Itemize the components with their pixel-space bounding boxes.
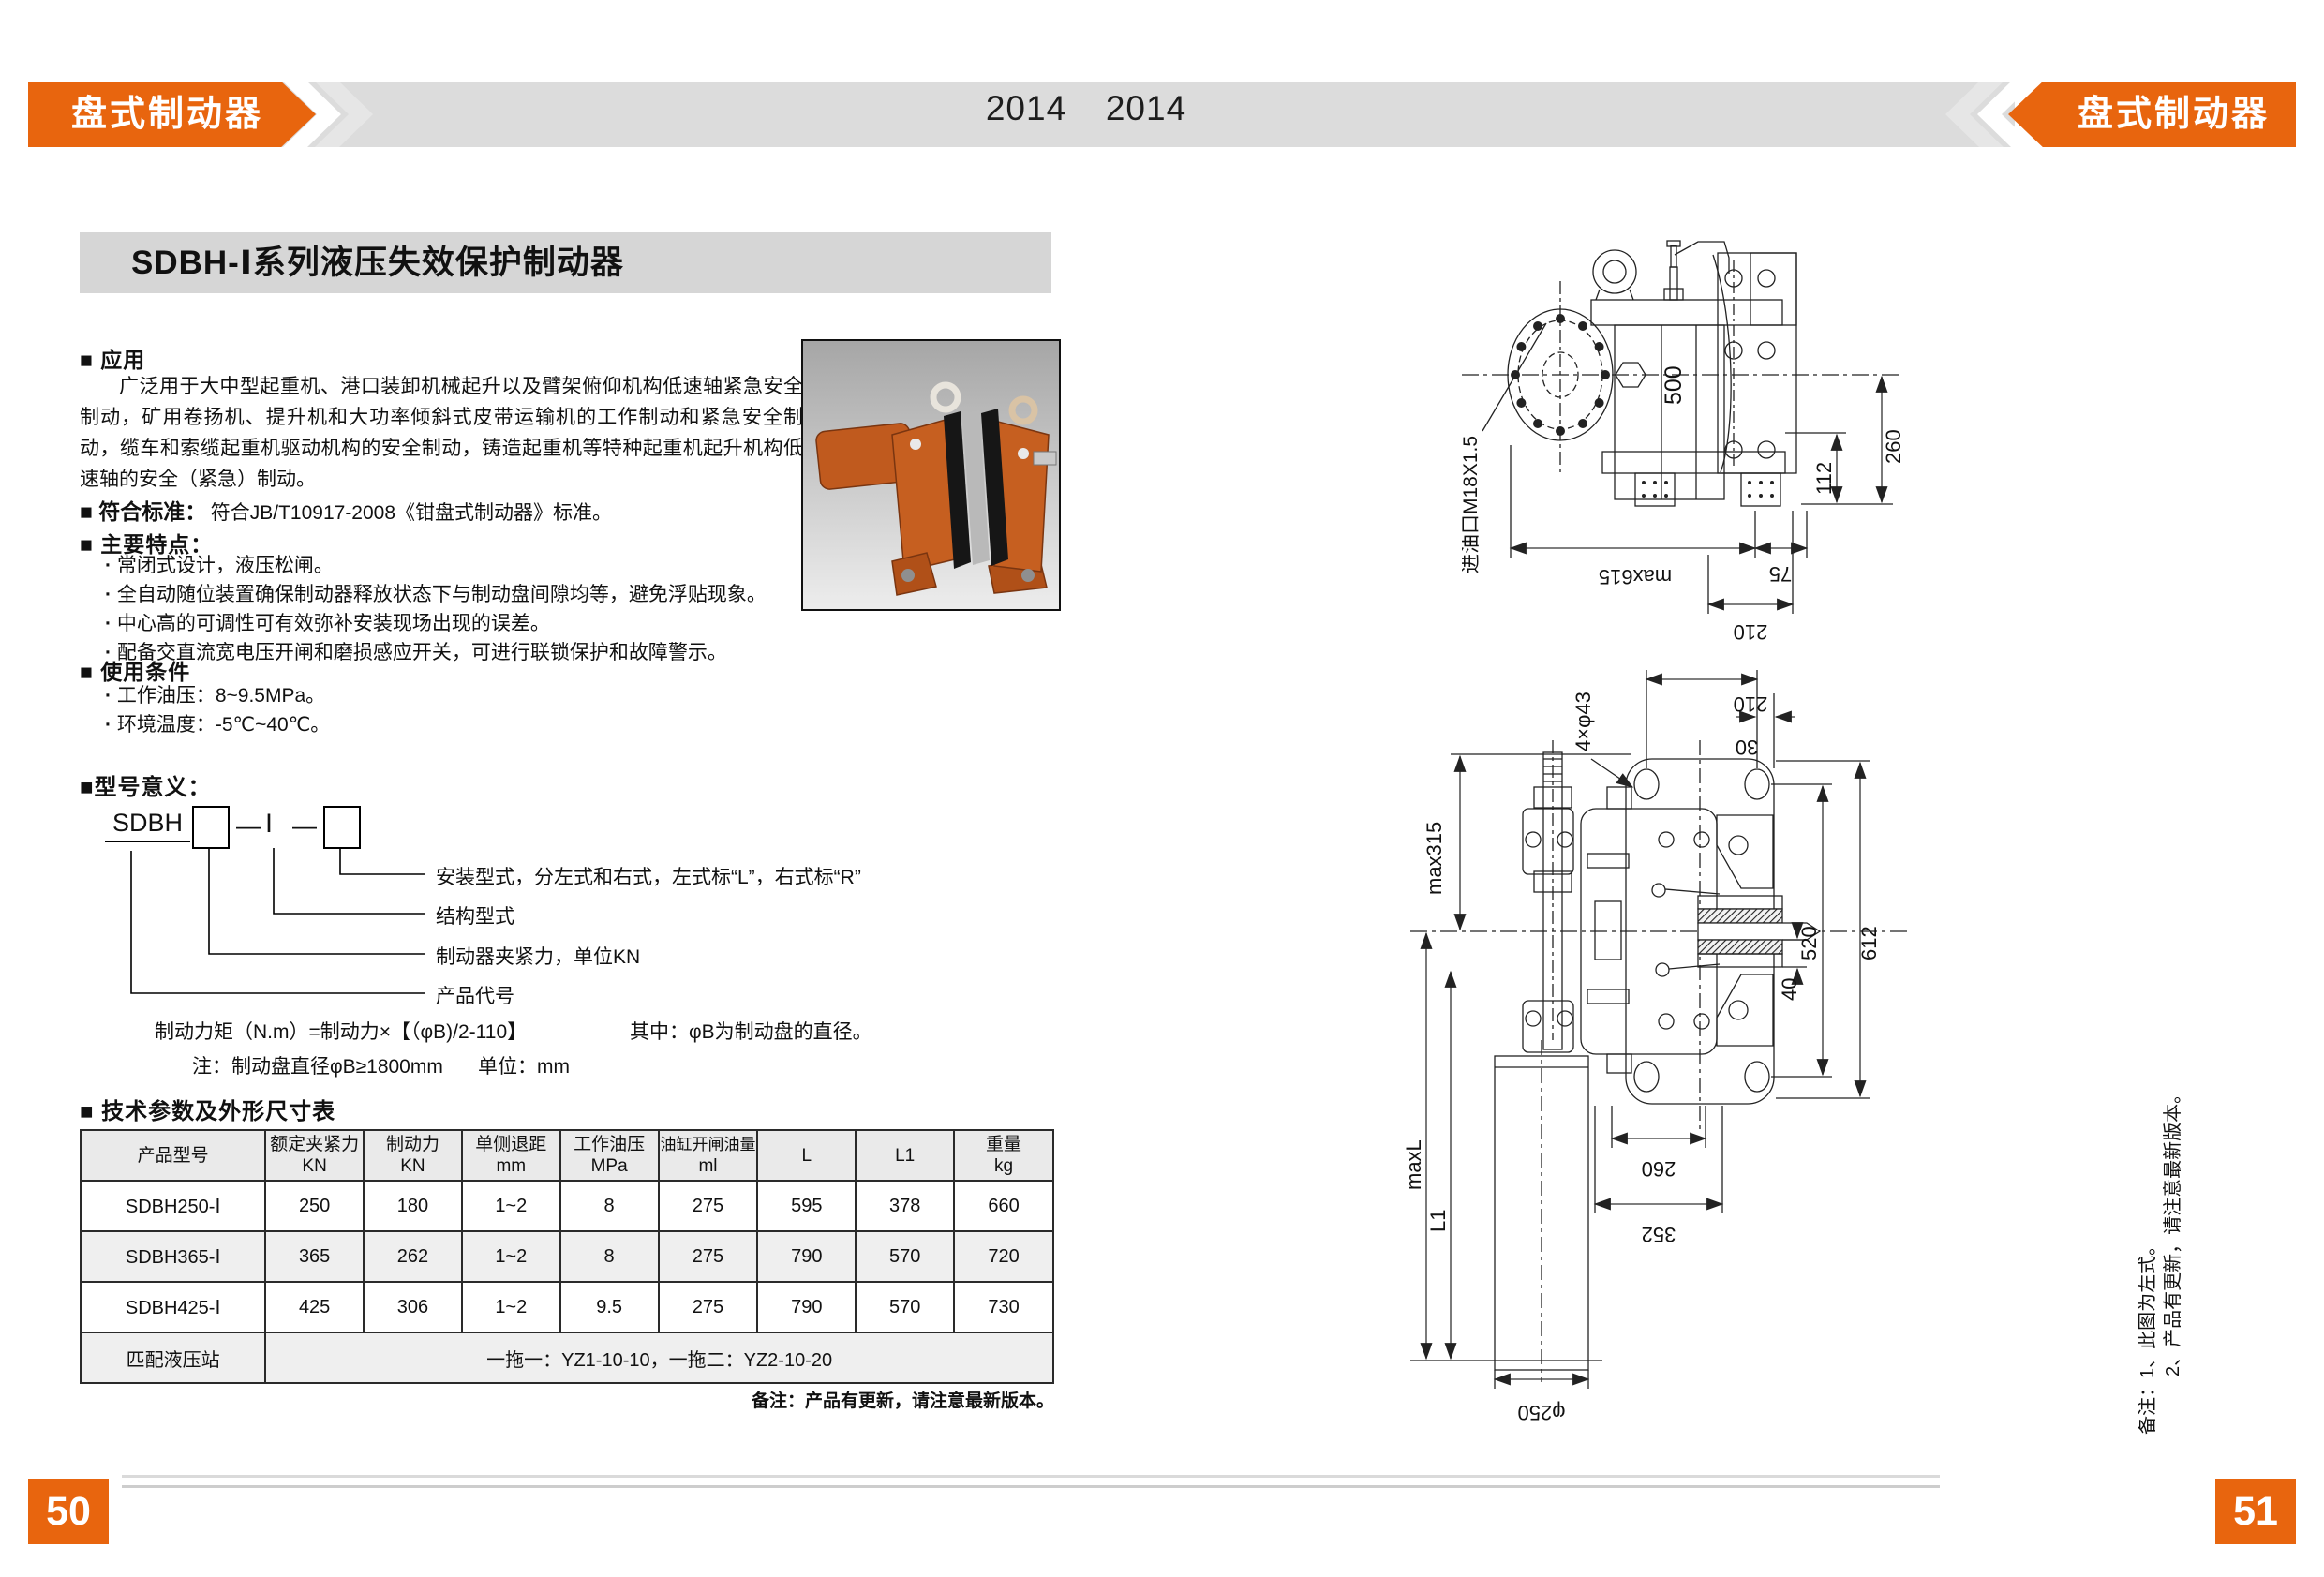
section-title-bar: SDBH-Ⅰ系列液压失效保护制动器 <box>80 232 1051 293</box>
product-photo <box>801 339 1061 611</box>
section-title: SDBH-Ⅰ系列液压失效保护制动器 <box>131 245 624 281</box>
drawing-remark-line: 2、产品有更新，请注意最新版本。 <box>2161 1041 2186 1435</box>
dim-30: 30 <box>1736 736 1758 759</box>
cell: 595 <box>757 1181 856 1231</box>
station-value: 一拖一：YZ1-10-10，一拖二：YZ2-10-20 <box>265 1332 1053 1383</box>
condition-item: 环境温度：-5℃~40℃。 <box>105 710 330 739</box>
cell: 1~2 <box>462 1282 560 1332</box>
dim-210: 210 <box>1734 692 1768 716</box>
model-box-mount <box>323 806 361 849</box>
cell: 275 <box>659 1181 758 1231</box>
year-left: 2014 <box>965 89 1087 128</box>
catalog-spread: 盘式制动器 盘式制动器 2014 2014 SDBH-Ⅰ系列液压失效保护制动器 … <box>0 0 2324 1577</box>
col-pressure: 工作油压MPa <box>560 1130 659 1181</box>
model-prefix: SDBH <box>105 809 190 842</box>
cell: 425 <box>265 1282 364 1332</box>
model-series: Ⅰ <box>265 810 273 839</box>
cell: 180 <box>364 1181 462 1231</box>
torque-formula-where: 其中：φB为制动盘的直径。 <box>630 1017 872 1045</box>
cell: 1~2 <box>462 1231 560 1282</box>
page-number-right: 51 <box>2215 1479 2296 1544</box>
dim-260: 260 <box>1642 1157 1676 1181</box>
cell: 730 <box>954 1282 1053 1332</box>
features-list: 常闭式设计，液压松闸。 全自动随位装置确保制动器释放状态下与制动盘间隙均等，避免… <box>105 551 767 667</box>
feature-item: 全自动随位装置确保制动器释放状态下与制动盘间隙均等，避免浮贴现象。 <box>105 580 767 609</box>
feature-item: 配备交直流宽电压开闸和磨损感应开关，可进行联锁保护和故障警示。 <box>105 638 767 667</box>
dim-260: 260 <box>1882 429 1905 464</box>
condition-item: 工作油压：8~9.5MPa。 <box>105 681 330 710</box>
dim-maxL: maxL <box>1402 1139 1425 1190</box>
dim-520: 520 <box>1797 926 1821 960</box>
torque-formula: 制动力矩（N.m）=制动力×【（φB)/2-110】 <box>155 1017 527 1045</box>
cell: 570 <box>856 1282 954 1332</box>
cell: 250 <box>265 1181 364 1231</box>
col-clamp: 额定夹紧力KN <box>265 1130 364 1181</box>
cell: 275 <box>659 1282 758 1332</box>
drawing-remarks: 备注：1、此图为左式。 2、产品有更新，请注意最新版本。 <box>2136 1041 2188 1435</box>
table-row: SDBH425-Ⅰ4253061~29.5275790570730 <box>81 1282 1053 1332</box>
cell: 9.5 <box>560 1282 659 1332</box>
standard-body: 符合JB/T10917-2008《钳盘式制动器》标准。 <box>211 502 612 524</box>
drawing-remark-line: 备注：1、此图为左式。 <box>2136 1041 2161 1435</box>
cell: 262 <box>364 1231 462 1282</box>
unit-note: 单位：mm <box>478 1051 570 1079</box>
standard-line: ■ 符合标准： 符合JB/T10917-2008《钳盘式制动器》标准。 <box>80 494 612 526</box>
cell: 275 <box>659 1231 758 1282</box>
model-box-force <box>192 806 230 849</box>
model-heading: ■型号意义： <box>80 768 212 801</box>
table-footer-row: 匹配液压站 一拖一：YZ1-10-10，一拖二：YZ2-10-20 <box>81 1332 1053 1383</box>
table-row: SDBH250-Ⅰ2501801~28275595378660 <box>81 1181 1053 1231</box>
cell: 790 <box>757 1282 856 1332</box>
footer-rule <box>122 1475 1940 1488</box>
model-dash: — <box>236 811 261 841</box>
banner-left-label: 盘式制动器 <box>71 95 263 134</box>
col-oil: 油缸开闸油量ml <box>659 1130 758 1181</box>
feature-item: 常闭式设计，液压松闸。 <box>105 551 767 580</box>
year-right: 2014 <box>1085 89 1207 128</box>
brake-photo-illustration <box>803 341 1059 609</box>
spec-header-row: 产品型号 额定夹紧力KN 制动力KN 单侧退距mm 工作油压MPa 油缸开闸油量… <box>81 1130 1053 1181</box>
conditions-list: 工作油压：8~9.5MPa。 环境温度：-5℃~40℃。 <box>105 681 330 739</box>
dim-112: 112 <box>1812 462 1836 495</box>
col-L1: L1 <box>856 1130 954 1181</box>
model-label-code: 产品代号 <box>436 981 514 1009</box>
station-label: 匹配液压站 <box>81 1332 265 1383</box>
page-number-left: 50 <box>28 1479 109 1544</box>
cell: SDBH250-Ⅰ <box>81 1181 265 1231</box>
disc-note: 注：制动盘直径φB≥1800mm <box>192 1051 443 1079</box>
spec-table: 产品型号 额定夹紧力KN 制动力KN 单侧退距mm 工作油压MPa 油缸开闸油量… <box>80 1129 1054 1384</box>
cell: 660 <box>954 1181 1053 1231</box>
model-label-force: 制动器夹紧力，单位KN <box>436 942 640 970</box>
feature-item: 中心高的可调性可有效弥补安装现场出现的误差。 <box>105 609 767 638</box>
dim-L1: L1 <box>1426 1210 1450 1232</box>
standard-heading: ■ 符合标准： <box>80 499 206 524</box>
cell: 1~2 <box>462 1181 560 1231</box>
table-note: 备注：产品有更新，请注意最新版本。 <box>469 1387 1054 1412</box>
cell: 378 <box>856 1181 954 1231</box>
banner-left: 盘式制动器 <box>28 82 316 147</box>
application-body: 广泛用于大中型起重机、港口装卸机械起升以及臂架俯仰机构低速轴紧急安全制动，矿用卷… <box>80 371 803 495</box>
dim-max315: max315 <box>1423 822 1446 895</box>
banner-right-label: 盘式制动器 <box>2078 95 2270 134</box>
drawing-front-view: 4×φ43 210 30 max315 612 520 40 maxL L1 2… <box>1396 600 2155 1462</box>
cell: 306 <box>364 1282 462 1332</box>
dim-612: 612 <box>1857 926 1881 960</box>
dim-bolt-holes: 4×φ43 <box>1572 692 1595 751</box>
dim-500: 500 <box>1661 365 1687 405</box>
cell: 8 <box>560 1231 659 1282</box>
col-model: 产品型号 <box>81 1130 265 1181</box>
col-L: L <box>757 1130 856 1181</box>
cell: SDBH365-Ⅰ <box>81 1231 265 1282</box>
model-dash: — <box>292 811 317 841</box>
col-weight: 重量kg <box>954 1130 1053 1181</box>
cell: 365 <box>265 1231 364 1282</box>
dim-75: 75 <box>1769 562 1792 586</box>
specs-heading: ■ 技术参数及外形尺寸表 <box>80 1093 335 1125</box>
dim-phi250: φ250 <box>1518 1401 1566 1424</box>
cell: 8 <box>560 1181 659 1231</box>
application-heading: ■ 应用 <box>80 342 145 374</box>
model-label-structure: 结构型式 <box>436 901 514 930</box>
drawing-side-view: 500 260 112 max615 75 210 进油口M18X1.5 <box>1462 150 2118 647</box>
dim-352: 352 <box>1642 1223 1676 1246</box>
cell: 720 <box>954 1231 1053 1282</box>
cell: 570 <box>856 1231 954 1282</box>
oil-inlet-label: 进油口M18X1.5 <box>1462 436 1482 573</box>
col-force: 制动力KN <box>364 1130 462 1181</box>
dim-max615: max615 <box>1599 565 1672 588</box>
cell: SDBH425-Ⅰ <box>81 1282 265 1332</box>
table-row: SDBH365-Ⅰ3652621~28275790570720 <box>81 1231 1053 1282</box>
dim-40: 40 <box>1778 978 1801 1001</box>
banner-right: 盘式制动器 <box>2008 82 2296 147</box>
model-label-mount: 安装型式，分左式和右式，左式标“L”，右式标“R” <box>436 862 861 890</box>
cell: 790 <box>757 1231 856 1282</box>
col-retract: 单侧退距mm <box>462 1130 560 1181</box>
